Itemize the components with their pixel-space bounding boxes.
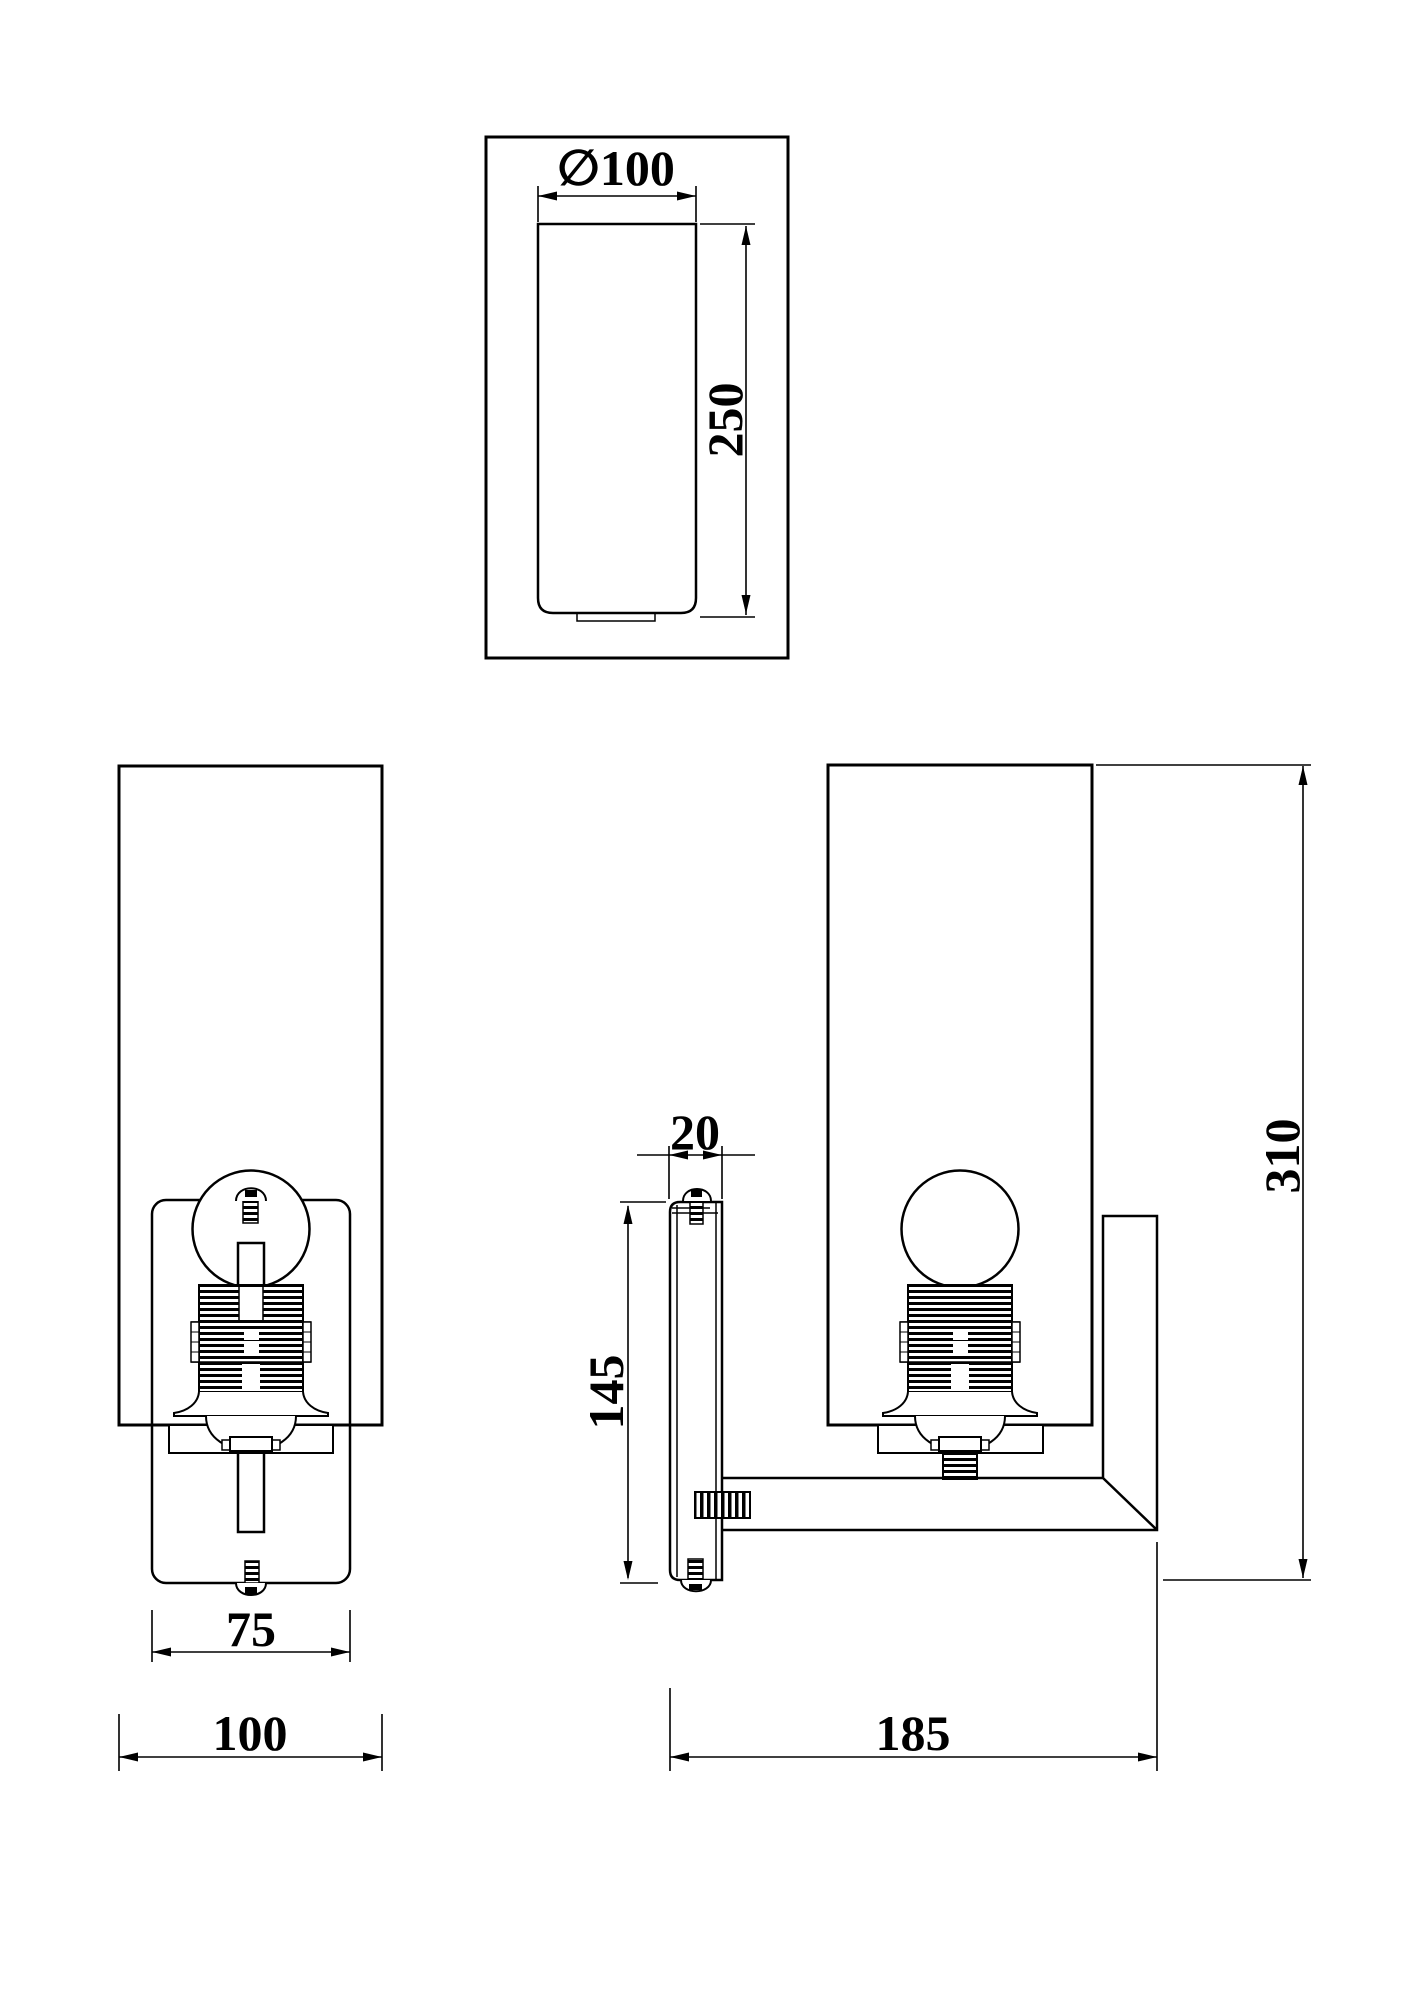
dim-label-plate-depth: 20 bbox=[670, 1104, 720, 1160]
side-thumbscrew-knob bbox=[695, 1492, 750, 1518]
dimension-drawing: ∅100 250 bbox=[0, 0, 1413, 2000]
paper-background bbox=[0, 0, 1413, 2000]
dim-label-plate-height: 145 bbox=[578, 1355, 634, 1430]
side-threaded-nipple bbox=[943, 1452, 977, 1479]
dim-label-shade-width: 100 bbox=[213, 1705, 288, 1761]
side-bulb bbox=[902, 1171, 1019, 1288]
dim-label-top-shade-height: 250 bbox=[697, 383, 753, 458]
dim-label-total-height: 310 bbox=[1254, 1119, 1310, 1194]
technical-drawing-page: ∅100 250 bbox=[0, 0, 1413, 2000]
side-wall-plate bbox=[670, 1202, 722, 1580]
dim-label-backplate-width: 75 bbox=[226, 1601, 276, 1657]
front-stem-slot bbox=[239, 1287, 263, 1320]
dim-label-top-diameter: ∅100 bbox=[557, 140, 675, 196]
dim-label-total-depth: 185 bbox=[876, 1705, 951, 1761]
